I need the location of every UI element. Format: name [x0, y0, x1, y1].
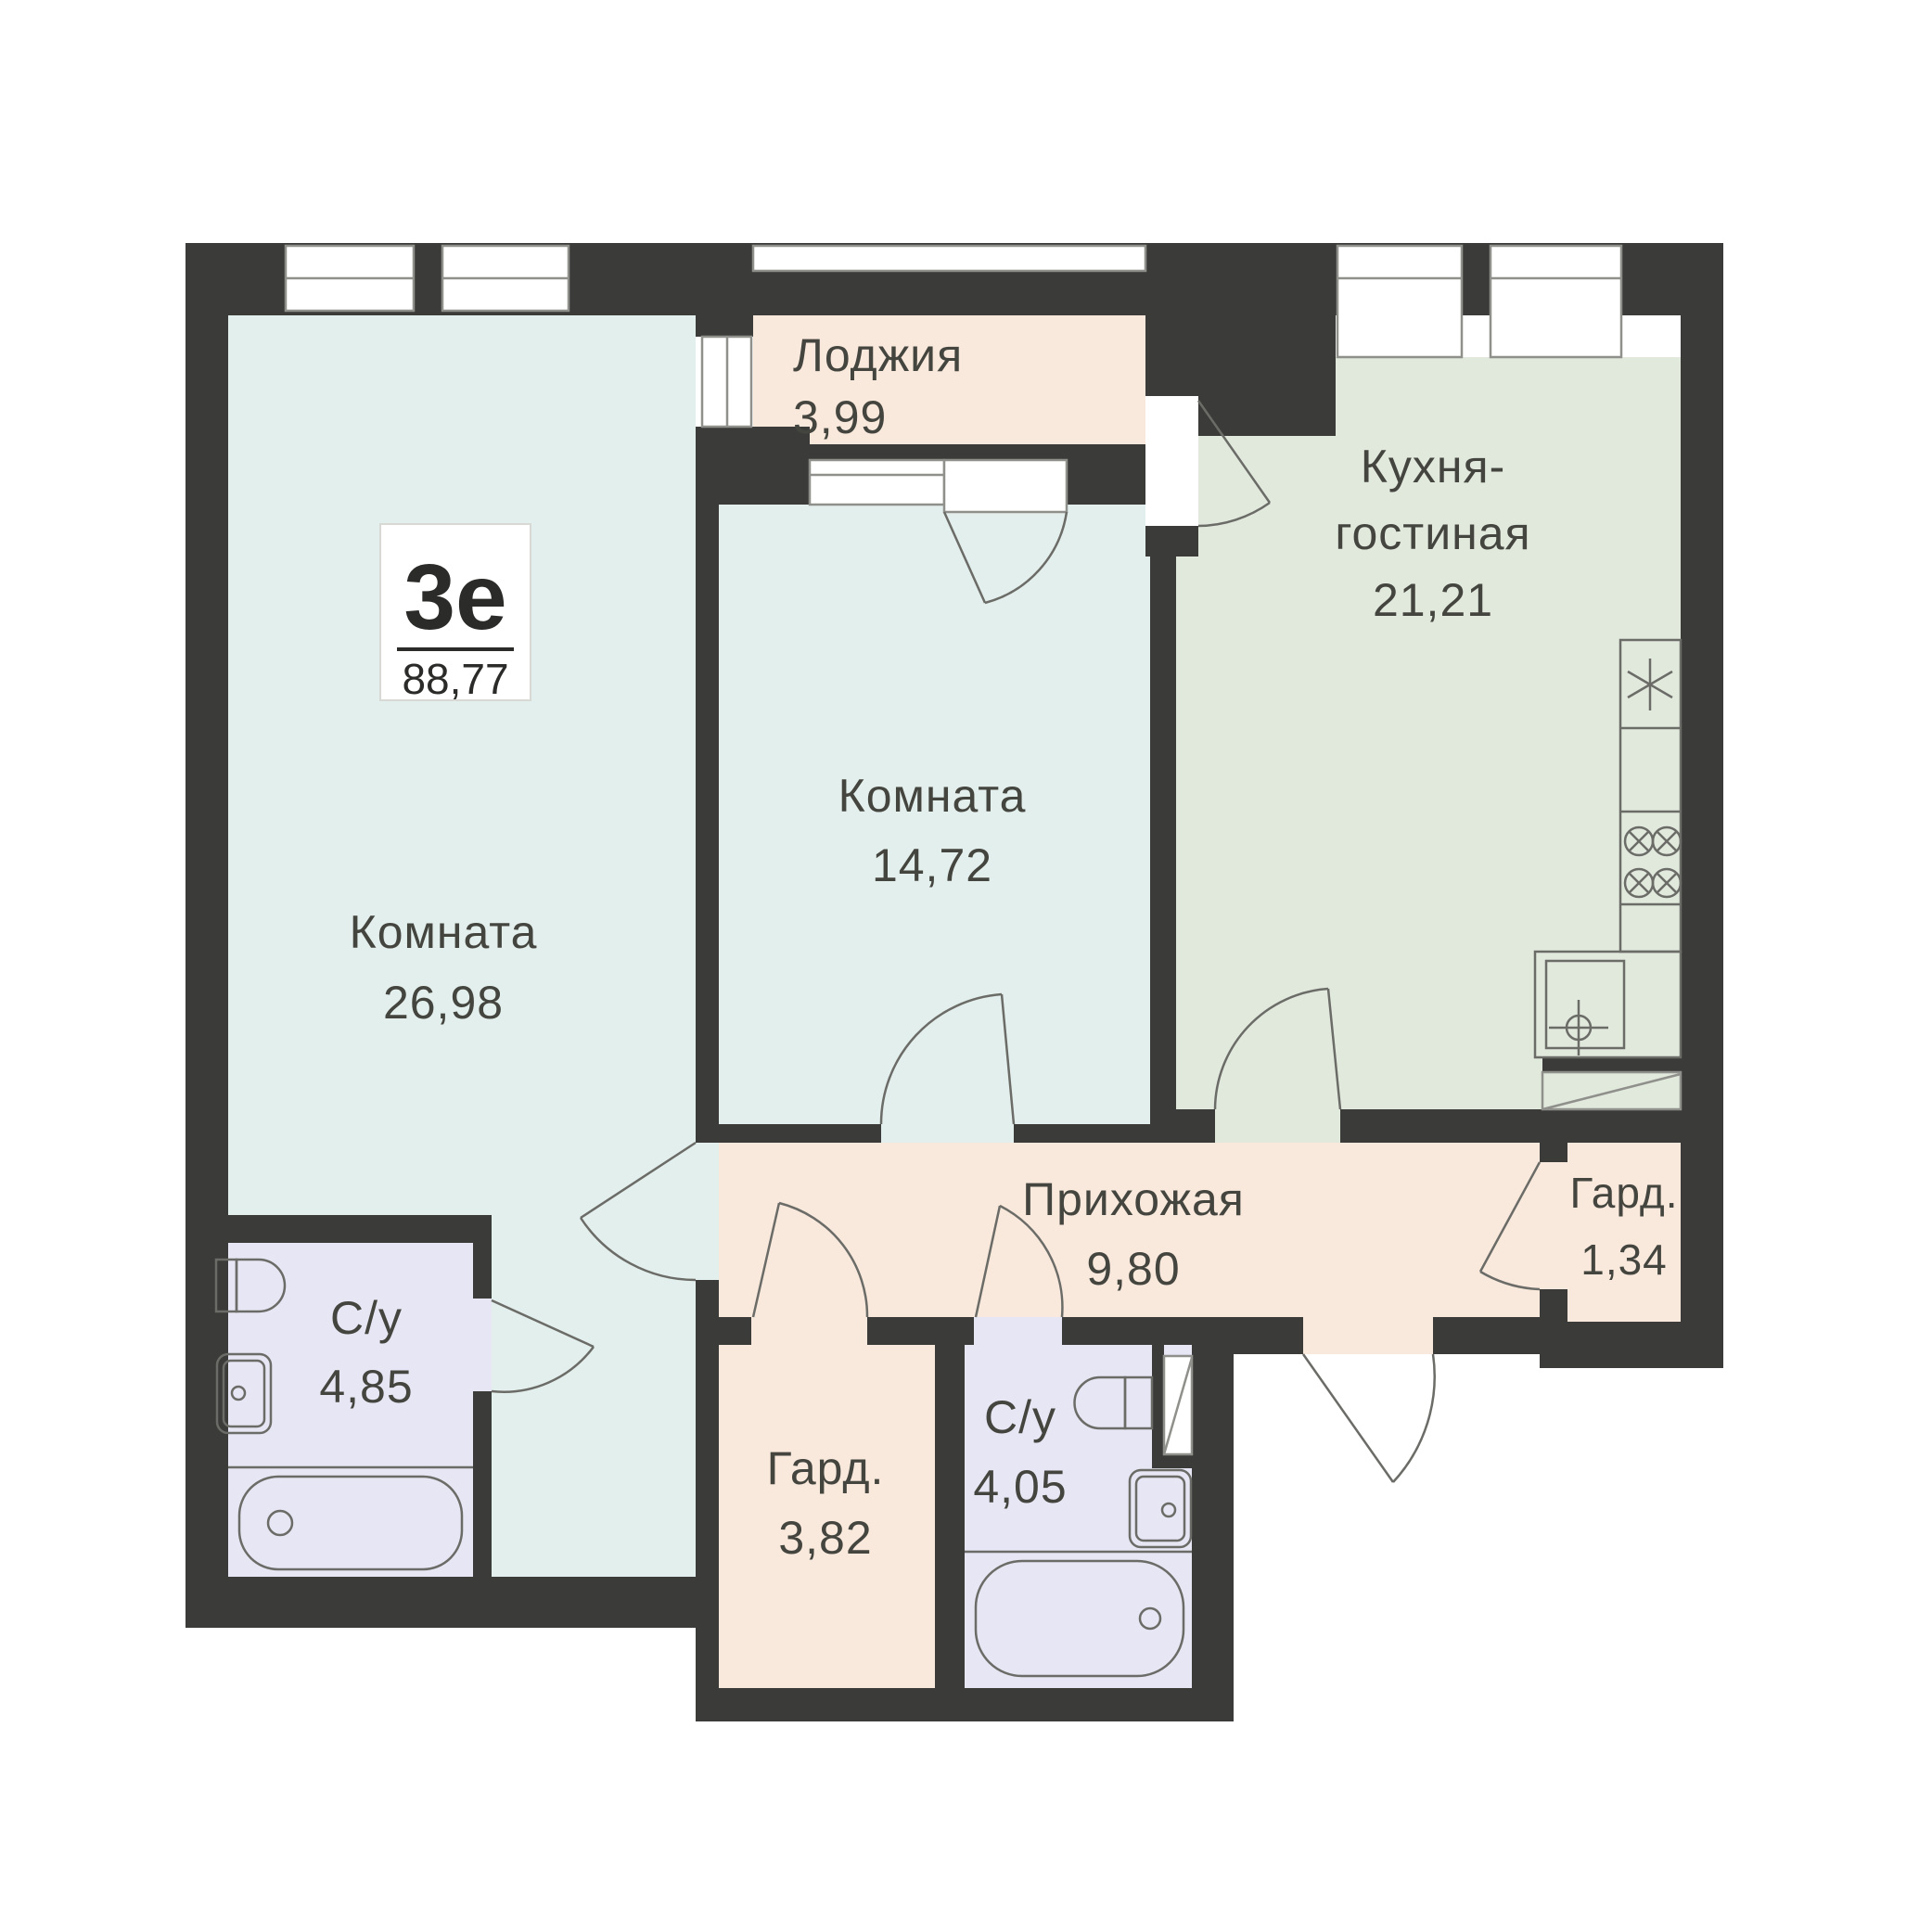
wall-segment: [867, 1317, 974, 1345]
badge-total-area: 88,77: [402, 655, 508, 703]
wall-segment: [1150, 505, 1176, 1124]
door-opening: [881, 1124, 1014, 1143]
bathroom-left-area: 4,85: [319, 1361, 413, 1413]
wall-segment: [186, 1577, 719, 1628]
entrance-door-swing-icon: [1303, 1354, 1393, 1482]
entrance-door-opening: [1303, 1317, 1433, 1354]
door-opening: [473, 1299, 492, 1391]
hallway-label: Прихожая: [1022, 1173, 1245, 1225]
window-icon: [1491, 246, 1621, 357]
loggia-glazing-icon: [753, 246, 1145, 271]
kitchen-label-line2: гостиная: [1335, 507, 1530, 559]
wall-segment: [696, 505, 719, 1143]
wall-segment: [1150, 1109, 1215, 1143]
balcony-door-icon: [944, 460, 1067, 512]
room-mid-area: 14,72: [872, 839, 992, 891]
room-mid-floor: [719, 505, 1150, 1143]
wall-segment: [1145, 243, 1198, 396]
wall-segment: [1540, 1289, 1567, 1322]
wall-segment: [186, 1215, 492, 1243]
wall-segment: [719, 1124, 881, 1143]
wall-segment: [1067, 460, 1150, 505]
floor-plan: Лоджия 3,99 Комната 14,72 Кухня- гостина…: [0, 0, 1932, 1932]
wall-segment: [696, 243, 753, 337]
wall-segment: [1681, 243, 1723, 1368]
wardrobe-big-area: 3,82: [778, 1512, 872, 1564]
wall-segment: [473, 1215, 492, 1299]
wardrobe-small-area: 1,34: [1580, 1235, 1668, 1284]
bathroom-mid-area: 4,05: [973, 1461, 1067, 1513]
wall-segment: [1540, 1143, 1567, 1162]
bathroom-left-label: С/у: [330, 1292, 403, 1344]
bathroom-mid-label: С/у: [984, 1391, 1056, 1443]
door-opening: [1540, 1162, 1567, 1289]
wall-segment: [753, 444, 1150, 460]
kitchen-area: 21,21: [1373, 574, 1493, 626]
entrance-door-swing-icon: [1393, 1354, 1435, 1482]
wall-segment: [1198, 243, 1336, 436]
badge-type-label: 3е: [403, 545, 506, 649]
wall-segment: [1340, 1109, 1723, 1143]
wall-segment: [719, 1317, 751, 1345]
window-icon: [1337, 246, 1462, 357]
window-icon: [810, 460, 944, 505]
wall-segment: [1014, 1124, 1150, 1143]
apartment-badge: 3е 88,77: [380, 524, 531, 703]
door-opening: [974, 1317, 1062, 1345]
wall-segment: [700, 1688, 1234, 1721]
floor-plan-page: Лоджия 3,99 Комната 14,72 Кухня- гостина…: [0, 0, 1932, 1932]
wall-segment: [1152, 1345, 1164, 1468]
wall-segment: [473, 1391, 492, 1577]
wall-segment: [696, 1280, 719, 1721]
door-opening: [1215, 1109, 1340, 1143]
wardrobe-small-label: Гард.: [1569, 1169, 1678, 1217]
room-big-area: 26,98: [383, 977, 504, 1029]
wall-segment: [935, 1345, 965, 1688]
hallway-area: 9,80: [1086, 1243, 1180, 1295]
wall-segment: [1433, 1317, 1540, 1354]
wall-segment: [1540, 1322, 1723, 1368]
wall-segment: [1542, 1057, 1681, 1072]
wall-segment: [186, 243, 228, 1628]
wall-segment: [1062, 1317, 1192, 1345]
wall-segment: [1192, 1317, 1234, 1721]
door-opening: [1145, 396, 1198, 526]
wall-segment: [1152, 1454, 1192, 1468]
loggia-area: 3,99: [793, 391, 887, 443]
room-big-label: Комната: [350, 906, 538, 958]
wardrobe-big-label: Гард.: [767, 1442, 885, 1494]
room-mid-label: Комната: [838, 770, 1027, 822]
door-opening: [696, 1143, 719, 1280]
door-opening: [751, 1317, 867, 1345]
loggia-label: Лоджия: [793, 329, 963, 381]
kitchen-label-line1: Кухня-: [1361, 441, 1505, 493]
